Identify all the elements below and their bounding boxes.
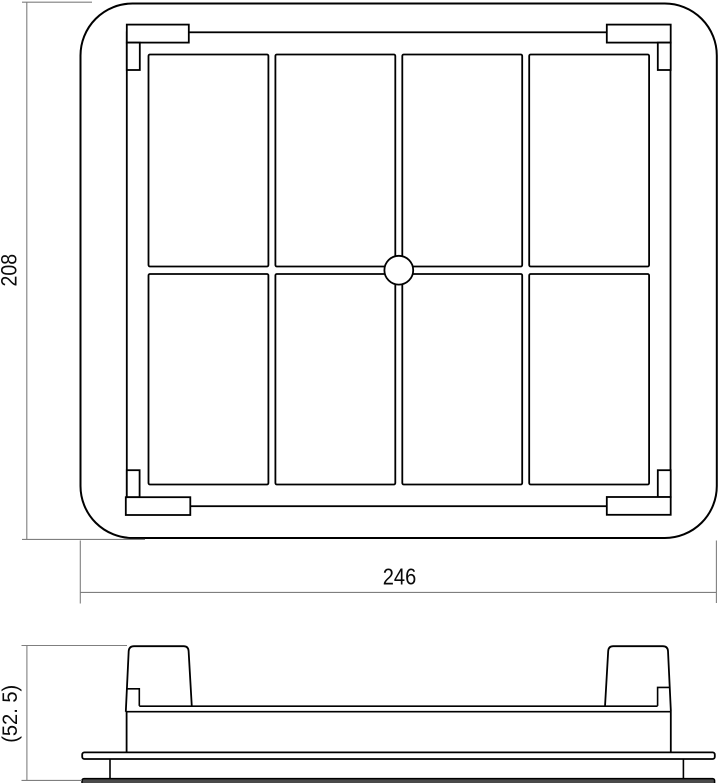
svg-text:208: 208 — [0, 254, 21, 287]
svg-text:(52. 5): (52. 5) — [0, 685, 22, 743]
svg-text:246: 246 — [383, 564, 417, 590]
